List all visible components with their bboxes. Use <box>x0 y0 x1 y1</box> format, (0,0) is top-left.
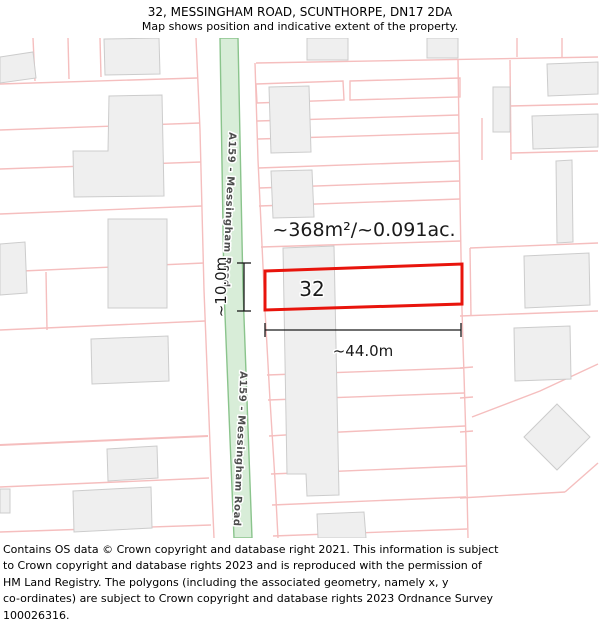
building <box>108 219 167 308</box>
building <box>427 38 458 58</box>
parcel-line <box>470 248 471 316</box>
parcel-line <box>273 529 467 536</box>
building <box>269 86 311 153</box>
parcel-line <box>0 206 202 214</box>
page-title: 32, MESSINGHAM ROAD, SCUNTHORPE, DN17 2D… <box>0 5 600 20</box>
building <box>104 38 160 75</box>
area-label: ~368m²/~0.091ac. <box>272 219 455 241</box>
parcel-line <box>460 492 565 498</box>
page-subtitle: Map shows position and indicative extent… <box>0 20 600 34</box>
footer-line: to Crown copyright and database rights 2… <box>3 558 594 574</box>
parcel-line <box>258 161 460 168</box>
parcel-line <box>511 151 598 153</box>
parcel-line <box>0 263 204 272</box>
property-map: A159 - Messingham Road A159 - Messingham… <box>0 38 600 538</box>
parcel-line <box>350 78 460 100</box>
building <box>524 253 590 308</box>
parcel-line <box>0 478 209 487</box>
building <box>547 62 598 96</box>
parcel-line <box>565 463 598 492</box>
parcel-line <box>46 272 47 330</box>
parcel-line <box>0 436 208 445</box>
parcel-line <box>460 367 473 368</box>
parcel-line <box>460 431 473 432</box>
plot-number-label: 32 <box>299 277 324 301</box>
parcel-line <box>0 123 200 130</box>
building <box>0 242 27 295</box>
building <box>532 114 598 149</box>
dimension-lines <box>237 263 461 337</box>
building <box>556 160 573 243</box>
header: 32, MESSINGHAM ROAD, SCUNTHORPE, DN17 2D… <box>0 0 600 38</box>
building <box>493 87 510 132</box>
parcel-line <box>68 38 69 79</box>
parcel-line <box>460 397 473 398</box>
copyright-footer: Contains OS data © Crown copyright and d… <box>0 538 600 624</box>
footer-line: HM Land Registry. The polygons (includin… <box>3 575 594 591</box>
building <box>317 512 366 538</box>
parcel-line <box>272 497 466 505</box>
building <box>307 38 348 60</box>
parcel-line <box>100 38 101 77</box>
parcel-line <box>510 104 598 106</box>
parcel-line <box>470 243 598 248</box>
building <box>514 326 571 381</box>
depth-dimension-label: ~10.0m <box>212 257 230 318</box>
building <box>73 95 164 197</box>
building <box>73 487 152 532</box>
footer-line: Contains OS data © Crown copyright and d… <box>3 542 594 558</box>
building <box>524 404 590 470</box>
width-dimension-label: ~44.0m <box>333 342 394 360</box>
footer-line: co-ordinates) are subject to Crown copyr… <box>3 591 594 607</box>
building <box>107 446 158 481</box>
parcel-line <box>460 311 598 316</box>
building <box>271 170 314 218</box>
building <box>0 489 10 513</box>
building <box>0 52 36 83</box>
footer-line: 100026316. <box>3 608 594 624</box>
building <box>91 336 169 384</box>
parcel-line <box>0 321 205 330</box>
parcel-line <box>261 241 461 247</box>
